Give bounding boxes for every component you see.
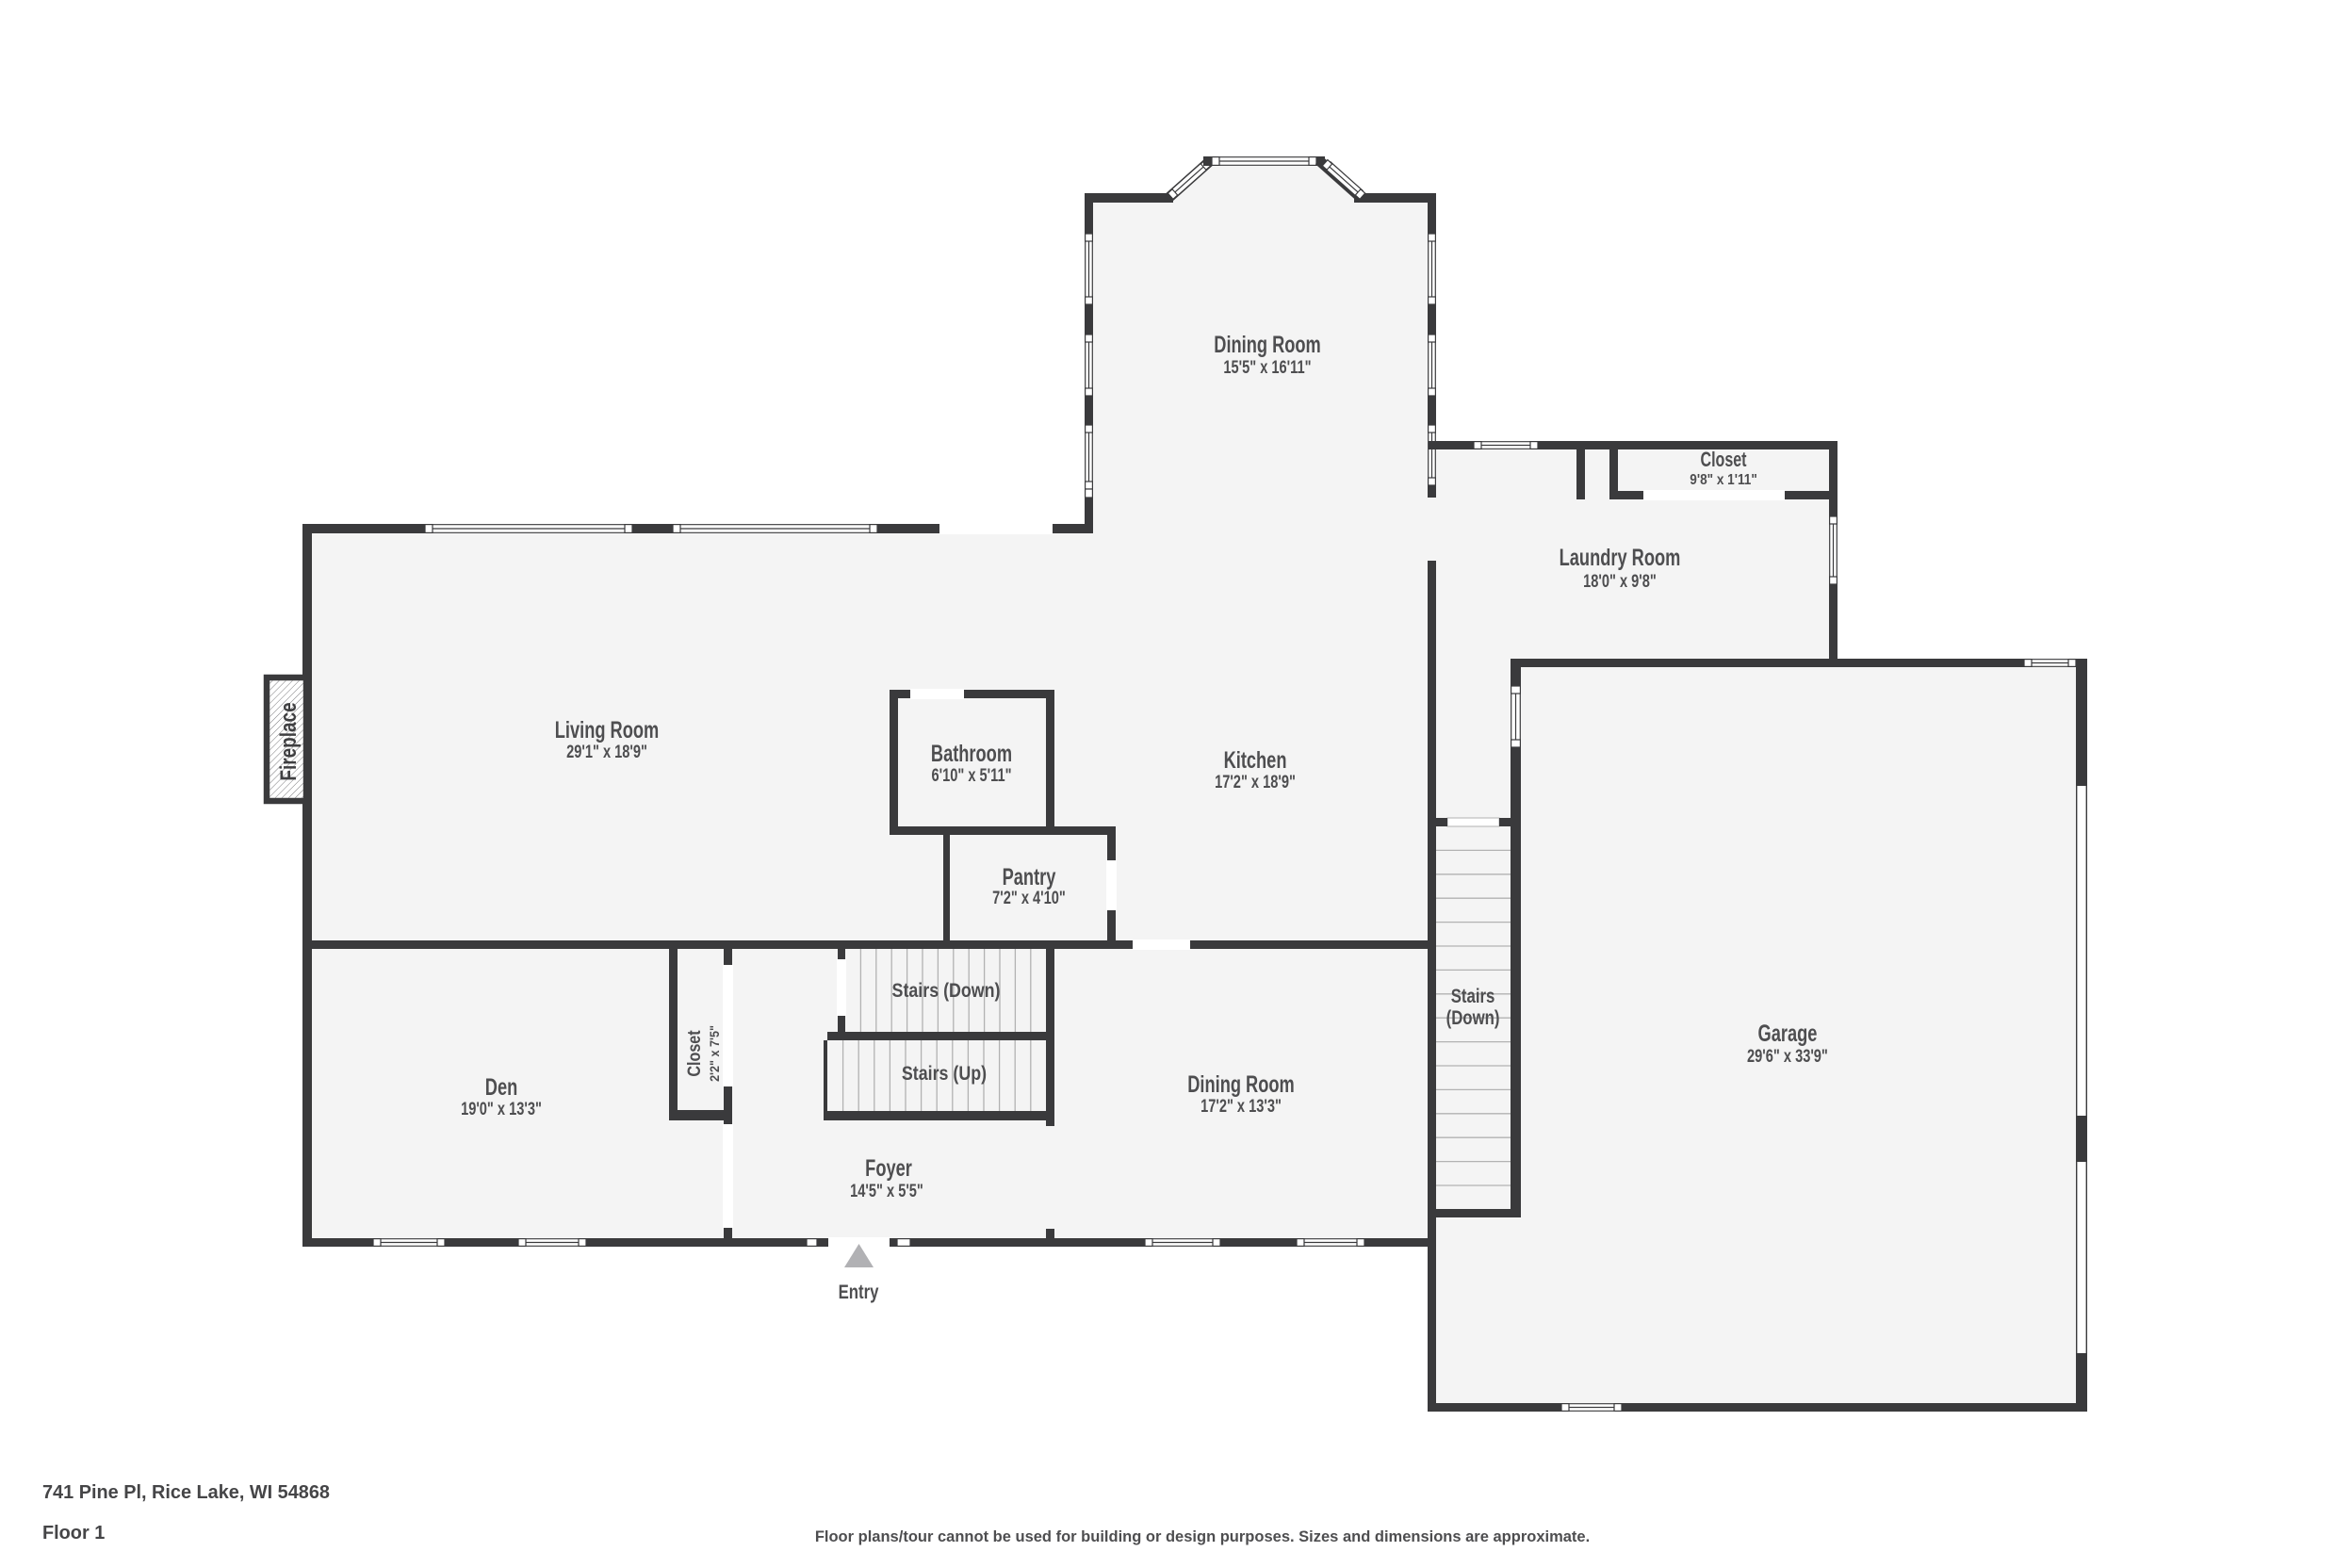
svg-text:Bathroom: Bathroom (931, 740, 1012, 767)
svg-text:Stairs (Up): Stairs (Up) (902, 1063, 987, 1086)
svg-text:Foyer: Foyer (865, 1154, 912, 1182)
svg-text:Floor 1: Floor 1 (42, 1523, 105, 1543)
svg-text:7'2" x 4'10": 7'2" x 4'10" (992, 887, 1066, 908)
svg-text:14'5" x 5'5": 14'5" x 5'5" (850, 1180, 923, 1201)
svg-text:Closet: Closet (1700, 449, 1747, 472)
svg-text:Dining Room: Dining Room (1187, 1070, 1294, 1098)
svg-text:9'8" x 1'11": 9'8" x 1'11" (1690, 472, 1756, 488)
svg-text:17'2" x 13'3": 17'2" x 13'3" (1200, 1095, 1282, 1117)
svg-text:Garage: Garage (1758, 1020, 1818, 1047)
svg-text:19'0" x 13'3": 19'0" x 13'3" (461, 1098, 542, 1119)
svg-text:741 Pine Pl, Rice Lake, WI 548: 741 Pine Pl, Rice Lake, WI 54868 (42, 1482, 330, 1503)
svg-text:Stairs (Down): Stairs (Down) (892, 980, 1001, 1003)
svg-text:2'2" x 7'5": 2'2" x 7'5" (707, 1025, 722, 1082)
svg-text:Den: Den (485, 1073, 517, 1101)
svg-text:29'6" x 33'9": 29'6" x 33'9" (1747, 1045, 1828, 1067)
svg-text:29'1" x 18'9": 29'1" x 18'9" (566, 741, 647, 762)
svg-text:Floor plans/tour cannot be use: Floor plans/tour cannot be used for buil… (815, 1528, 1590, 1545)
svg-text:Laundry Room: Laundry Room (1560, 544, 1681, 571)
svg-text:Entry: Entry (839, 1282, 879, 1303)
svg-text:Stairs: Stairs (1451, 986, 1495, 1007)
svg-text:15'5" x 16'11": 15'5" x 16'11" (1223, 356, 1311, 378)
svg-text:18'0" x 9'8": 18'0" x 9'8" (1583, 570, 1657, 592)
svg-text:6'10" x 5'11": 6'10" x 5'11" (932, 764, 1012, 786)
svg-text:17'2" x 18'9": 17'2" x 18'9" (1215, 771, 1296, 792)
svg-text:(Down): (Down) (1446, 1007, 1500, 1029)
svg-text:Closet: Closet (684, 1030, 705, 1076)
svg-text:Kitchen: Kitchen (1224, 746, 1287, 774)
svg-text:Dining Room: Dining Room (1214, 331, 1320, 358)
svg-text:Fireplace: Fireplace (275, 702, 302, 780)
svg-text:Living Room: Living Room (555, 716, 659, 743)
